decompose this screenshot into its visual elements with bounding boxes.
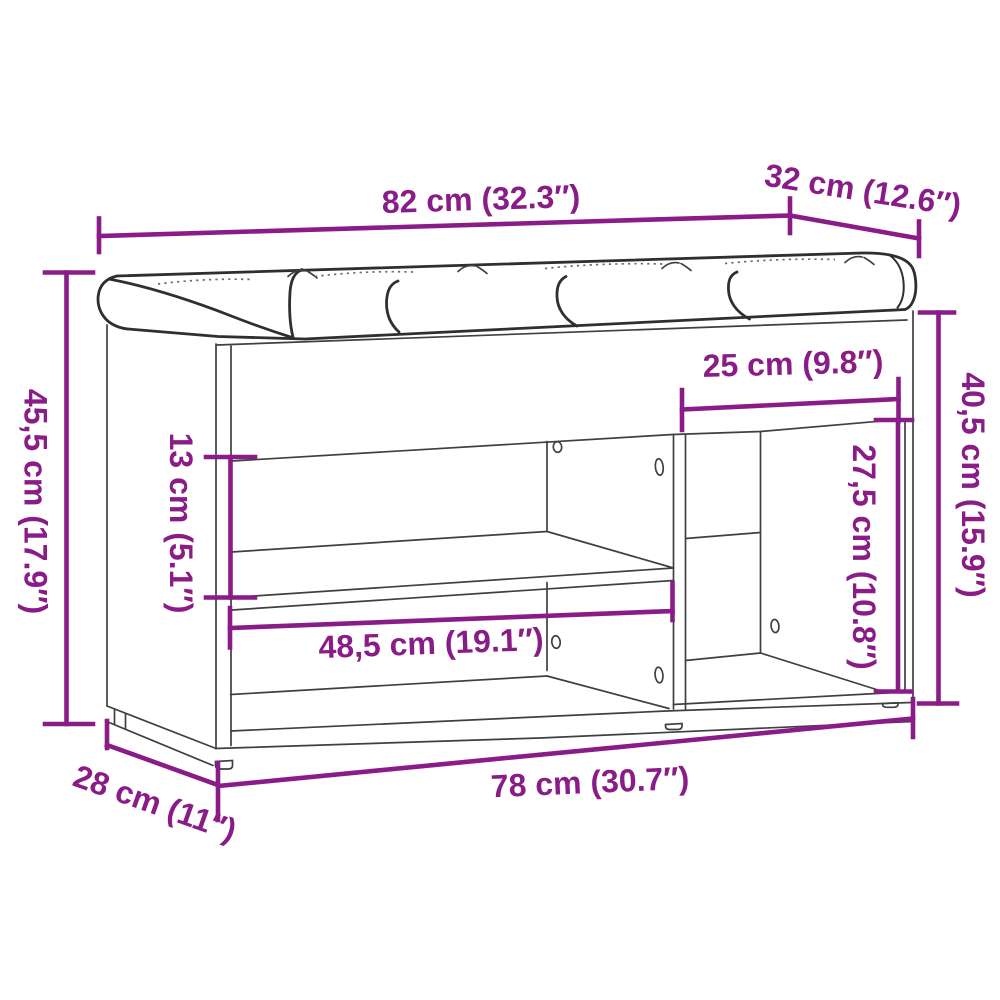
svg-text:13 cm (5.1″): 13 cm (5.1″) (163, 433, 199, 614)
svg-text:28 cm (11″): 28 cm (11″) (69, 758, 241, 849)
svg-text:32 cm (12.6″): 32 cm (12.6″) (762, 157, 964, 224)
svg-text:48,5 cm (19.1″): 48,5 cm (19.1″) (318, 621, 544, 665)
svg-text:78 cm (30.7″): 78 cm (30.7″) (490, 760, 690, 805)
svg-text:25 cm (9.8″): 25 cm (9.8″) (702, 343, 884, 384)
svg-text:27,5 cm (10.8″): 27,5 cm (10.8″) (846, 444, 882, 669)
svg-text:40,5 cm (15.9″): 40,5 cm (15.9″) (955, 372, 991, 597)
svg-text:45,5 cm (17.9″): 45,5 cm (17.9″) (18, 389, 54, 614)
svg-text:82 cm (32.3″): 82 cm (32.3″) (381, 178, 581, 220)
